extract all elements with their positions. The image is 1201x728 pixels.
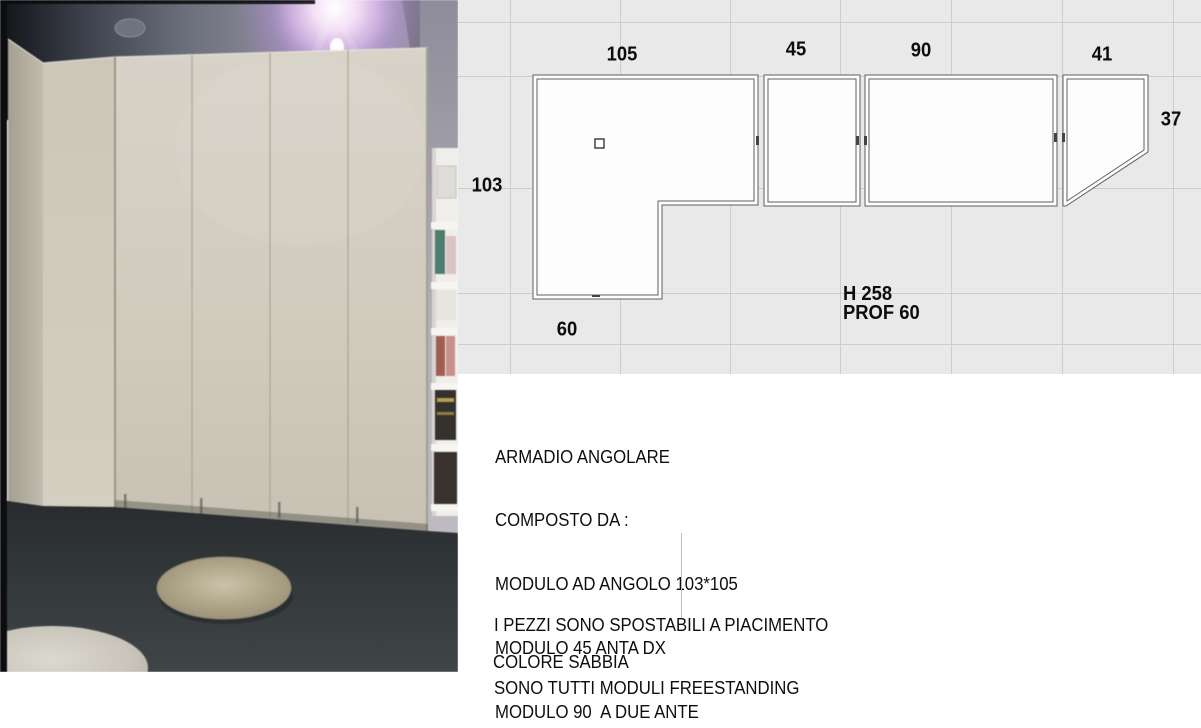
photo-edge [0, 0, 7, 672]
wardrobe-photo-graphic [0, 0, 458, 672]
description-line: COMPOSTO DA : [495, 510, 738, 531]
door-handle-mark [856, 136, 859, 145]
plan-module-41 [1063, 75, 1148, 206]
bookshelf [431, 148, 458, 516]
round-rug [157, 557, 291, 619]
door-handle-mark [592, 295, 600, 297]
storage-box [436, 290, 456, 320]
note-line: SONO TUTTI MODULI FREESTANDING [494, 678, 828, 699]
book [446, 236, 456, 274]
shelf-board [431, 328, 458, 335]
photo-edge [0, 0, 315, 4]
shelf-board [431, 282, 458, 289]
ceiling-spotlight [115, 19, 145, 37]
dim-terminal-depth: 37 [1161, 109, 1181, 132]
door-handle-mark [1062, 133, 1065, 142]
door-handle-mark [864, 136, 867, 145]
product-sheet: 105 45 90 41 37 103 60 H 258 PROF 60 ARM… [0, 0, 1201, 728]
dim-corner-width: 105 [607, 44, 638, 67]
plan-module-45 [764, 75, 860, 206]
text-cursor-artifact [681, 533, 682, 618]
note-line: I PEZZI SONO SPOSTABILI A PIACIMENTO [494, 615, 828, 636]
wardrobe-photo [0, 0, 458, 672]
handle-square-symbol [595, 139, 604, 148]
corner-wardrobe [8, 39, 428, 531]
book [435, 230, 445, 274]
dim-module45-width: 45 [786, 39, 806, 62]
color-note: COLORE SABBIA [493, 652, 629, 673]
floor-plan: 105 45 90 41 37 103 60 H 258 PROF 60 [458, 0, 1201, 374]
door-handle-mark [1054, 133, 1057, 142]
book [436, 336, 445, 376]
wardrobe-corner-door [43, 57, 115, 507]
plan-module-90 [865, 75, 1057, 206]
dim-corner-depth: 103 [472, 175, 503, 198]
shelf-board [431, 383, 458, 390]
book [446, 336, 455, 376]
depth-note: PROF 60 [843, 304, 920, 323]
plan-corner-module [533, 75, 758, 299]
freestanding-notes: I PEZZI SONO SPOSTABILI A PIACIMENTO SON… [494, 572, 828, 728]
dim-module90-width: 90 [911, 40, 931, 63]
dim-module41-width: 41 [1092, 44, 1112, 67]
shelf-board [431, 504, 458, 511]
dim-corner-leg-width: 60 [557, 319, 577, 342]
door-handle-mark [756, 136, 759, 145]
framed-photo [437, 166, 456, 198]
book [434, 452, 457, 504]
shelf-board [431, 444, 458, 451]
wardrobe-side-panel [8, 39, 43, 506]
description-line: ARMADIO ANGOLARE [495, 447, 738, 468]
shelf-board [431, 222, 458, 229]
